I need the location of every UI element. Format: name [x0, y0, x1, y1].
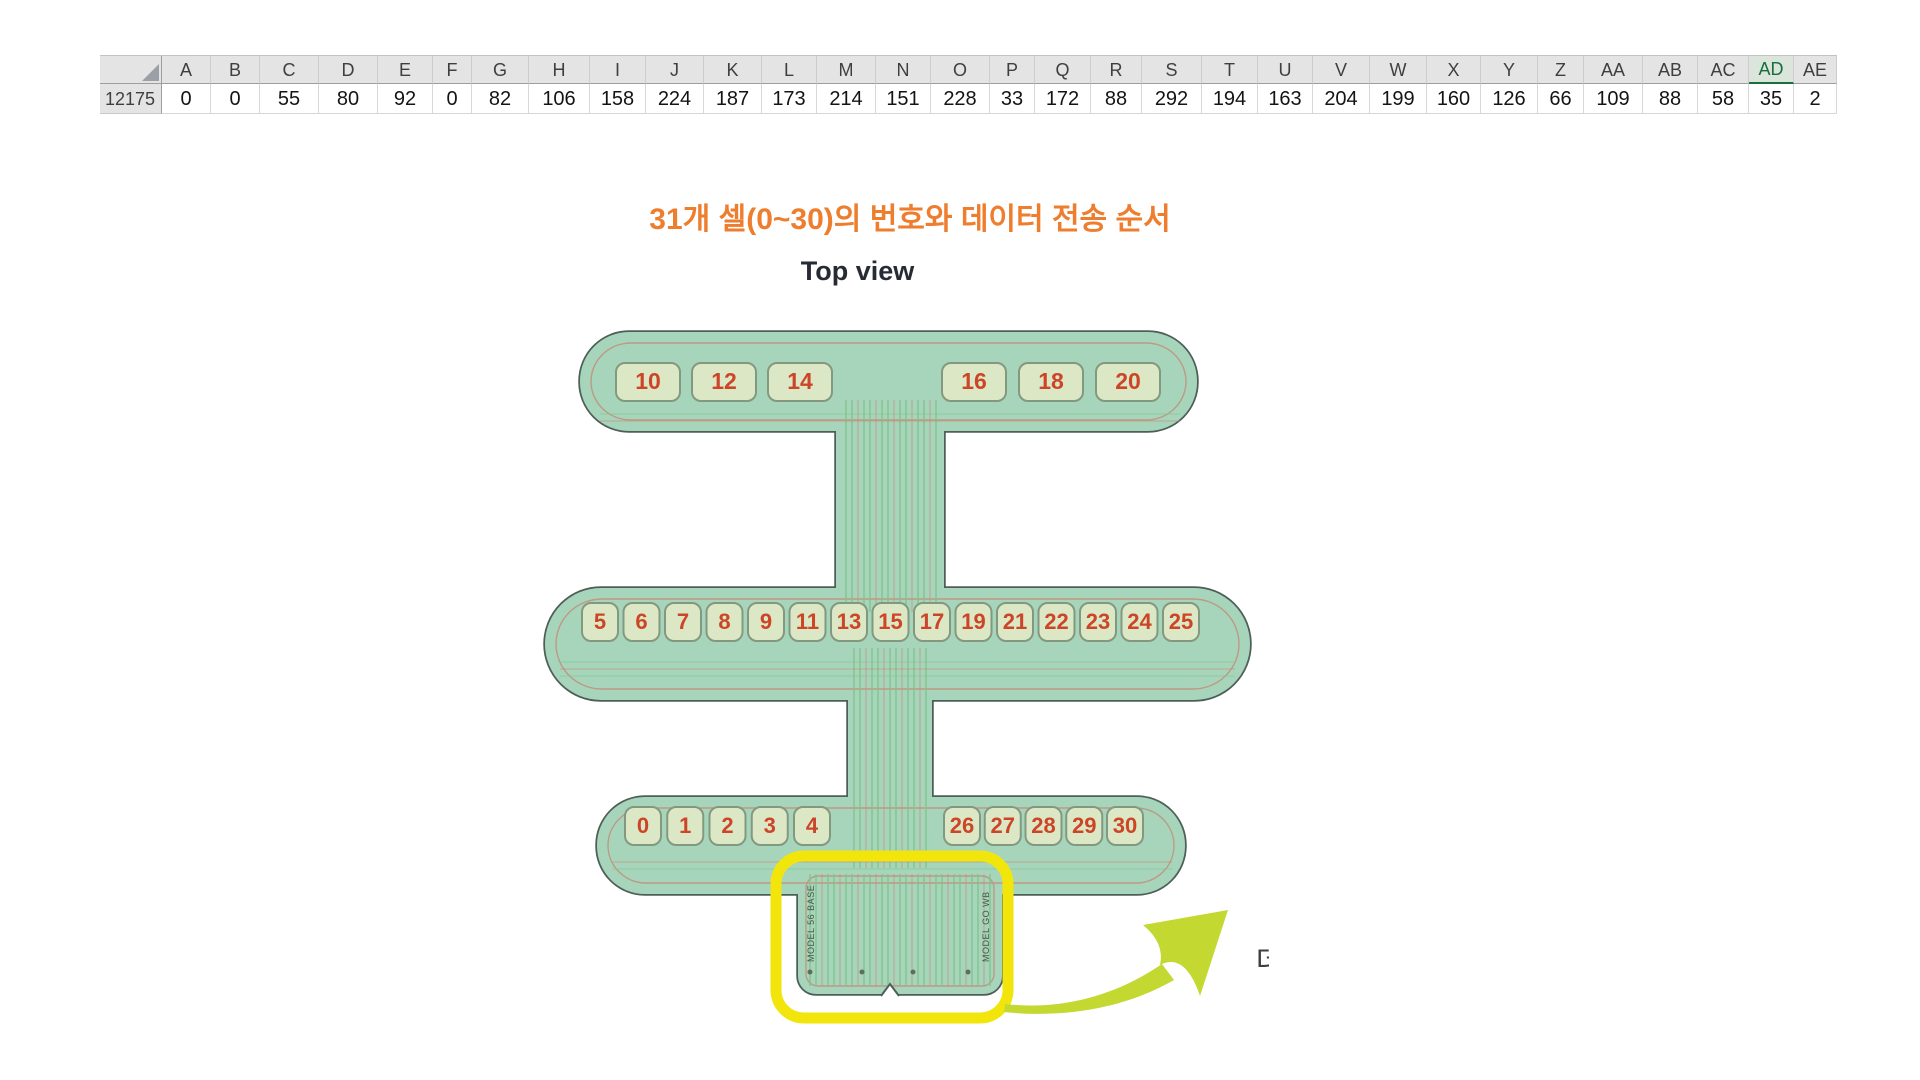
cell-number-22: 22	[1044, 609, 1068, 634]
cell-number-17: 17	[920, 609, 944, 634]
cell-number-26: 26	[950, 813, 974, 838]
sensor-cell-11: 11	[790, 603, 826, 641]
cell-number-30: 30	[1113, 813, 1137, 838]
sensor-cell-21: 21	[997, 603, 1033, 641]
cell-number-27: 27	[991, 813, 1015, 838]
cell-number-21: 21	[1003, 609, 1027, 634]
page: ABCDEFGHIJKLMNOPQRSTUVWXYZAAABACADAE 121…	[0, 0, 1920, 1080]
sensor-cell-13: 13	[831, 603, 867, 641]
cell-number-9: 9	[760, 609, 772, 634]
cell-number-6: 6	[635, 609, 647, 634]
sensor-cell-15: 15	[873, 603, 909, 641]
cell-number-8: 8	[718, 609, 730, 634]
cell-number-16: 16	[961, 368, 987, 394]
cell-number-29: 29	[1072, 813, 1096, 838]
sensor-cell-22: 22	[1039, 603, 1075, 641]
sensor-cell-9: 9	[748, 603, 784, 641]
cell-number-13: 13	[837, 609, 861, 634]
cell-number-25: 25	[1169, 609, 1193, 634]
cell-number-14: 14	[787, 368, 813, 394]
sensor-cell-4: 4	[794, 807, 830, 845]
sensor-cell-27: 27	[985, 807, 1021, 845]
sensor-cell-26: 26	[944, 807, 980, 845]
cell-number-2: 2	[721, 813, 733, 838]
sensor-cell-30: 30	[1107, 807, 1143, 845]
sensor-cell-23: 23	[1080, 603, 1116, 641]
sensor-cell-3: 3	[752, 807, 788, 845]
sensor-layout-diagram: 1012141618205678911131517192122232425012…	[0, 0, 1920, 1080]
sensor-cell-18: 18	[1019, 363, 1083, 401]
cell-number-12: 12	[711, 368, 737, 394]
sensor-cell-7: 7	[665, 603, 701, 641]
cell-number-19: 19	[961, 609, 985, 634]
sensor-cell-0: 0	[625, 807, 661, 845]
cell-number-23: 23	[1086, 609, 1110, 634]
sensor-cell-10: 10	[616, 363, 680, 401]
sensor-cell-14: 14	[768, 363, 832, 401]
connector-right-label: MODEL GO WB	[981, 891, 991, 962]
callout-arrow	[1004, 910, 1228, 1014]
cell-number-7: 7	[677, 609, 689, 634]
sensor-cell-25: 25	[1163, 603, 1199, 641]
sensor-cell-17: 17	[914, 603, 950, 641]
sensor-cell-5: 5	[582, 603, 618, 641]
sensor-cell-28: 28	[1026, 807, 1062, 845]
cell-number-11: 11	[796, 609, 819, 634]
sensor-cell-1: 1	[667, 807, 703, 845]
cell-number-0: 0	[637, 813, 649, 838]
cell-number-18: 18	[1038, 368, 1064, 394]
clipped-text: 데	[1256, 936, 1269, 978]
connector-left-label: MODEL 56 BASE	[806, 885, 816, 962]
sensor-cell-24: 24	[1122, 603, 1158, 641]
sensor-cell-6: 6	[624, 603, 660, 641]
cell-number-4: 4	[806, 813, 819, 838]
cell-number-24: 24	[1127, 609, 1152, 634]
sensor-cell-12: 12	[692, 363, 756, 401]
sensor-cell-16: 16	[942, 363, 1006, 401]
cell-number-28: 28	[1031, 813, 1055, 838]
sensor-cell-19: 19	[956, 603, 992, 641]
cell-number-5: 5	[594, 609, 606, 634]
sensor-cell-2: 2	[710, 807, 746, 845]
sensor-cell-20: 20	[1096, 363, 1160, 401]
cell-number-3: 3	[764, 813, 776, 838]
cell-number-15: 15	[878, 609, 902, 634]
cell-number-20: 20	[1115, 368, 1141, 394]
sensor-cell-29: 29	[1066, 807, 1102, 845]
cell-number-10: 10	[635, 368, 661, 394]
cell-number-1: 1	[679, 813, 691, 838]
sensor-cell-8: 8	[707, 603, 743, 641]
